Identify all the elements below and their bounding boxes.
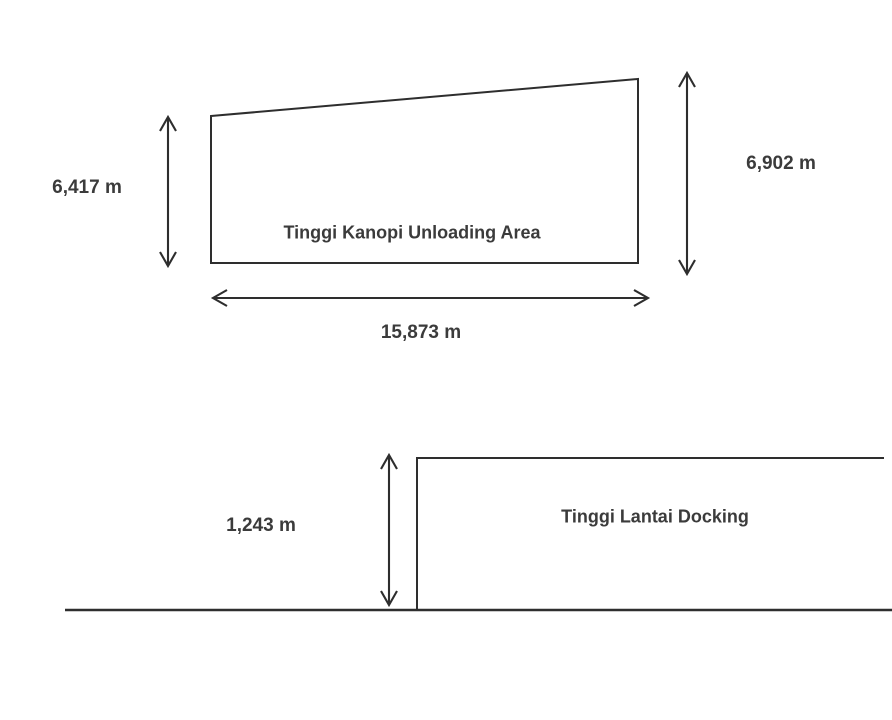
docking-platform-outline [417,458,884,610]
canopy-width-arrow-icon [213,290,648,306]
docking-step-height-arrow-icon [381,455,397,605]
canopy-height-arrow-right-icon [679,73,695,274]
docking-label: Tinggi Lantai Docking [561,507,749,528]
docking-figure [65,455,892,610]
canopy-figure [160,73,695,306]
canopy-height-arrow-left-icon [160,117,176,266]
canopy-right-height-value: 6,902 m [746,153,816,175]
canopy-width-value: 15,873 m [381,322,461,344]
diagram-shapes [0,0,892,720]
canopy-label: Tinggi Kanopi Unloading Area [283,223,540,244]
canopy-left-height-value: 6,417 m [52,177,122,199]
diagram-canvas: 6,417 m 6,902 m Tinggi Kanopi Unloading … [0,0,892,720]
docking-step-height-value: 1,243 m [226,515,296,537]
